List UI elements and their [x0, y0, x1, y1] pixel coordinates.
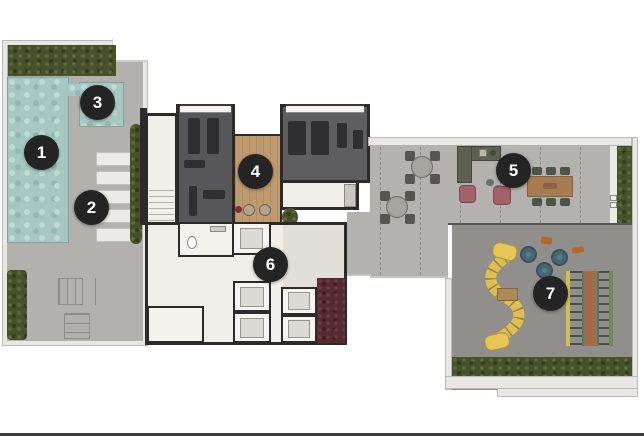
right-outer-wall [632, 137, 638, 390]
marker-label: 4 [251, 162, 260, 182]
climb-rungs [570, 271, 582, 346]
marker-label: 6 [266, 255, 275, 275]
paving-joint [580, 147, 581, 223]
rowing-machine [203, 190, 225, 199]
climb-plank [582, 271, 599, 346]
marker-playground: 7 [533, 276, 568, 311]
spring-disc-toy [551, 249, 568, 266]
marker-sun-deck: 2 [74, 190, 109, 225]
terrace-chair [430, 174, 440, 184]
sun-lounger [96, 152, 132, 166]
dining-chair [546, 167, 556, 175]
exercise-bike [207, 118, 219, 154]
weight-bench [288, 121, 306, 155]
lounge-armchair [459, 185, 476, 203]
elevator [281, 287, 317, 315]
deck-bottom-planter [7, 270, 27, 340]
marker-label: 2 [87, 198, 96, 218]
right-hedge [617, 146, 632, 225]
lounge-armchair [493, 186, 511, 205]
walkway-fixture [610, 202, 617, 208]
top-hedge [8, 45, 116, 76]
core-room [147, 306, 204, 343]
round-table [386, 196, 408, 218]
round-table [411, 156, 433, 178]
dumbbell-rack [353, 130, 363, 149]
dining-chair [532, 198, 542, 206]
stair-treads [149, 190, 174, 221]
playground-bench [497, 288, 518, 301]
counter-plant [490, 150, 496, 156]
marker-terrace: 5 [496, 153, 531, 188]
terrace-floor-extension [347, 212, 371, 276]
bathroom-sink [210, 226, 226, 232]
dining-chair [546, 198, 556, 206]
terrace-chair [405, 214, 415, 224]
sun-lounger [96, 228, 132, 242]
paving-joint [380, 147, 381, 275]
marker-spa: 3 [80, 85, 115, 120]
marker-gym: 4 [238, 154, 273, 189]
terrace-chair [380, 214, 390, 224]
side-walkway [609, 146, 617, 225]
marker-label: 5 [509, 161, 518, 181]
sun-lounger [96, 171, 132, 185]
climb-rail-green [609, 271, 613, 346]
dining-chair [560, 167, 570, 175]
floor-plan: 1 2 3 4 5 6 7 [0, 0, 644, 440]
bottom-divider-line [0, 433, 644, 436]
gym-window-band-left [180, 104, 231, 113]
elevator [281, 315, 317, 343]
plant-pot [235, 206, 242, 213]
pouf [259, 204, 271, 216]
elevator [233, 281, 271, 312]
gym-window-band-right [286, 104, 364, 113]
dining-chair [532, 167, 542, 175]
climb-rungs [599, 271, 609, 346]
climbing-structure [566, 271, 613, 346]
pool-channel [68, 84, 80, 96]
table-decor [543, 183, 557, 189]
terrace-playground-divider [448, 223, 632, 225]
terrace-chair [405, 174, 415, 184]
marker-core: 6 [253, 247, 288, 282]
spin-bike [189, 186, 197, 216]
deck-top-step-void [112, 39, 148, 62]
toilet [187, 236, 197, 249]
bbq-sink [479, 149, 487, 157]
marker-label: 7 [546, 284, 555, 304]
stone-pouf [486, 179, 494, 186]
terrace-floor [370, 145, 448, 278]
exercise-bike [188, 118, 200, 154]
pouf [243, 204, 255, 216]
vertical-garden [317, 278, 345, 343]
playground-left-wall [445, 278, 452, 390]
walkway-fixture [610, 195, 617, 201]
marker-label: 3 [93, 93, 102, 113]
marker-label: 1 [37, 143, 46, 163]
marker-pool: 1 [24, 135, 59, 170]
dining-chair [560, 198, 570, 206]
bbq-counter-side [457, 146, 472, 183]
deck-handrail [95, 278, 96, 305]
deck-bench [64, 313, 90, 339]
spring-disc-toy [520, 246, 537, 263]
deck-steps [58, 278, 83, 305]
elevator [233, 312, 271, 343]
weight-bench [311, 121, 329, 155]
cable-machine [337, 123, 347, 148]
toy-cart [541, 236, 553, 244]
gym-bench [184, 160, 205, 168]
terrace-chair [430, 151, 440, 161]
playground-bottom-wall-step [497, 388, 638, 397]
playground-hedge [452, 357, 632, 376]
terrace-chair [405, 191, 415, 201]
support-room-counter [344, 184, 356, 207]
